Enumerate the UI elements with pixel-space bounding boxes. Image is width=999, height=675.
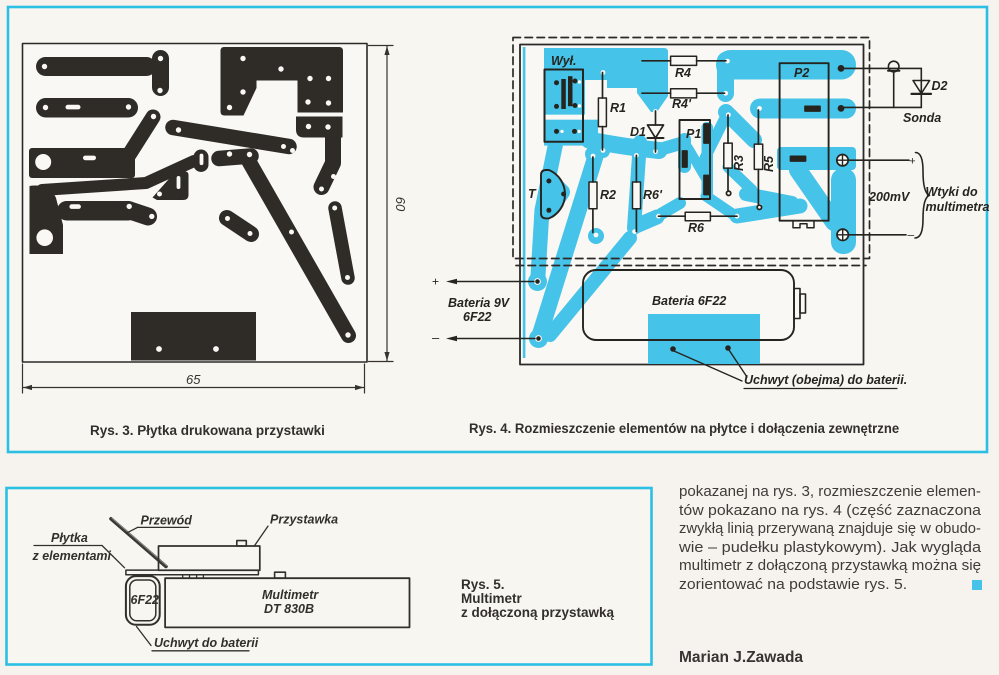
svg-text:P2: P2 [794,66,809,80]
svg-text:z elementami: z elementami [32,549,112,563]
svg-text:D2: D2 [932,79,948,93]
svg-text:R1: R1 [610,101,626,115]
svg-text:Bateria 6F22: Bateria 6F22 [652,294,726,308]
svg-text:R4: R4 [675,66,691,80]
svg-text:R2: R2 [600,188,616,202]
svg-text:+: + [432,275,439,289]
svg-text:200mV: 200mV [868,190,911,204]
svg-text:P1: P1 [686,127,701,141]
svg-text:R4': R4' [672,97,692,111]
svg-text:R5: R5 [762,155,776,172]
svg-text:Sonda: Sonda [903,111,941,125]
svg-text:65: 65 [186,372,201,387]
svg-text:R6': R6' [643,188,663,202]
svg-text:60: 60 [393,197,408,212]
svg-text:Multimetr: Multimetr [262,588,319,602]
svg-text:D1: D1 [630,125,646,139]
svg-text:DT 830B: DT 830B [264,602,314,616]
svg-text:Uchwyt do baterii: Uchwyt do baterii [154,636,259,650]
svg-text:–: – [432,330,440,345]
svg-text:Płytka: Płytka [51,531,88,545]
svg-text:6F22: 6F22 [131,593,160,607]
svg-text:Wył.: Wył. [551,54,576,68]
svg-text:Bateria 9V: Bateria 9V [448,296,511,310]
svg-text:multimetra: multimetra [926,200,990,214]
svg-text:–: – [907,228,915,242]
svg-text:Uchwyt (obejma) do baterii.: Uchwyt (obejma) do baterii. [744,373,907,387]
svg-text:Przewód: Przewód [141,514,193,528]
svg-text:Wtyki do: Wtyki do [926,185,978,199]
svg-text:R6: R6 [688,221,705,235]
svg-text:R3: R3 [732,155,746,171]
svg-text:6F22: 6F22 [463,310,492,324]
svg-text:+: + [909,156,916,168]
svg-text:Przystawka: Przystawka [270,513,338,527]
